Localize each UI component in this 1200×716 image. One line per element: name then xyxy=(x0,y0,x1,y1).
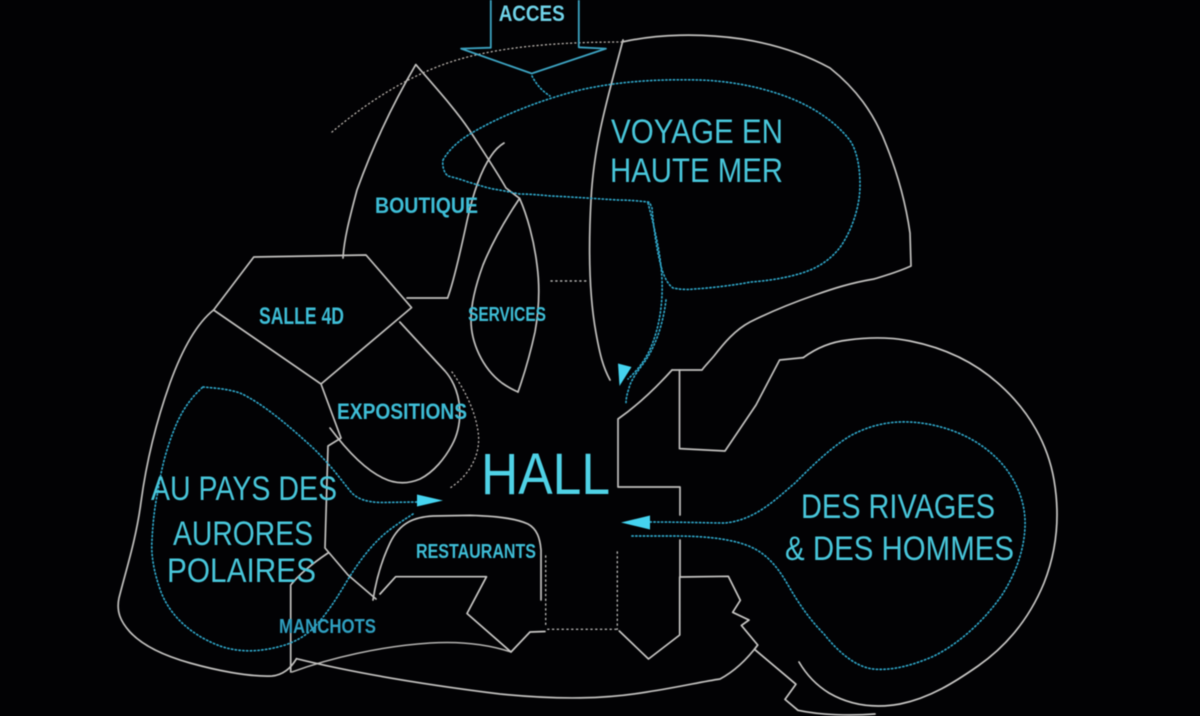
svg-text:VOYAGE EN: VOYAGE EN xyxy=(611,113,783,151)
svg-text:AU PAYS DES: AU PAYS DES xyxy=(151,470,337,508)
svg-text:POLAIRES: POLAIRES xyxy=(167,552,316,590)
svg-text:DES RIVAGES: DES RIVAGES xyxy=(801,488,995,526)
svg-text:HALL: HALL xyxy=(481,442,610,507)
svg-text:HAUTE MER: HAUTE MER xyxy=(610,152,783,190)
svg-text:BOUTIQUE: BOUTIQUE xyxy=(375,193,478,218)
svg-text:AURORES: AURORES xyxy=(173,515,313,553)
svg-text:SALLE 4D: SALLE 4D xyxy=(259,303,344,330)
svg-text:SERVICES: SERVICES xyxy=(468,304,546,326)
svg-text:RESTAURANTS: RESTAURANTS xyxy=(416,541,536,563)
svg-text:& DES HOMMES: & DES HOMMES xyxy=(785,530,1014,568)
svg-text:MANCHOTS: MANCHOTS xyxy=(279,616,376,638)
svg-text:ACCES: ACCES xyxy=(499,1,565,26)
svg-text:EXPOSITIONS: EXPOSITIONS xyxy=(337,399,467,424)
